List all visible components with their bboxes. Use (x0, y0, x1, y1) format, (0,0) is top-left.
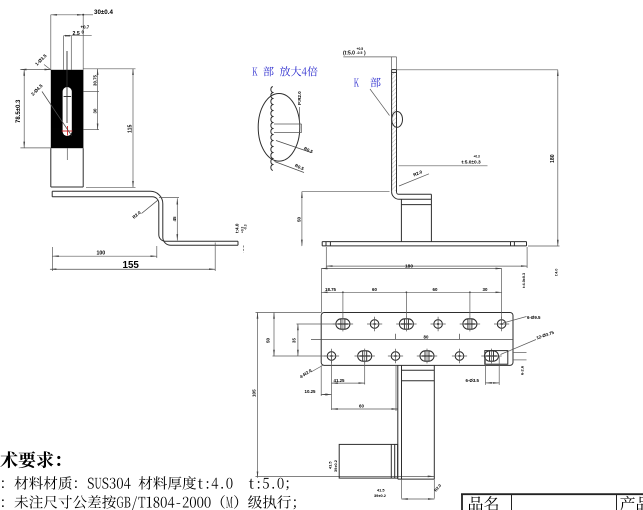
svg-text:41.5: 41.5 (328, 461, 333, 469)
svg-text:80: 80 (424, 335, 429, 340)
svg-text:45: 45 (172, 216, 177, 222)
svg-text:t:4.0: t:4.0 (235, 223, 240, 233)
svg-text:35: 35 (292, 338, 297, 343)
svg-text:10.25: 10.25 (305, 389, 317, 394)
svg-text:41.5: 41.5 (377, 488, 385, 493)
svg-text:2.5: 2.5 (73, 31, 80, 37)
svg-text:2-Ø4.5: 2-Ø4.5 (30, 83, 44, 97)
svg-text:t:5.0±0.3: t:5.0±0.3 (462, 159, 481, 165)
svg-text:6-Ø9.5: 6-Ø9.5 (527, 315, 541, 320)
svg-text:60: 60 (433, 287, 438, 292)
svg-text:(t:5.0: (t:5.0 (343, 51, 355, 57)
svg-text:R2.0: R2.0 (131, 210, 142, 220)
svg-text:): ) (364, 51, 366, 57)
svg-text:t:4.0±0.3: t:4.0±0.3 (522, 273, 526, 288)
svg-text:60: 60 (359, 403, 364, 408)
svg-text:1-Ø3.5: 1-Ø3.5 (34, 53, 48, 67)
svg-text:50: 50 (297, 216, 302, 222)
svg-text:78.5±0.3: 78.5±0.3 (16, 99, 22, 123)
svg-text:t:4.0: t:4.0 (555, 269, 559, 276)
svg-text:6-Ø3.5: 6-Ø3.5 (466, 378, 480, 383)
svg-text:R0.5: R0.5 (303, 146, 314, 155)
svg-text:6-2.6: 6-2.6 (520, 365, 525, 375)
svg-text:P:R2.0: P:R2.0 (297, 91, 302, 105)
svg-text:30.75: 30.75 (92, 74, 97, 86)
svg-text:30±0.4: 30±0.4 (94, 9, 113, 16)
svg-text:105: 105 (251, 389, 256, 397)
svg-text:R2.0: R2.0 (412, 169, 423, 177)
svg-text:18.75: 18.75 (325, 287, 337, 292)
svg-text:100: 100 (97, 251, 106, 257)
svg-text:115: 115 (128, 125, 134, 133)
svg-text:180: 180 (550, 154, 556, 163)
svg-text:39±0.2: 39±0.2 (374, 493, 387, 498)
svg-text:41.25: 41.25 (334, 378, 346, 383)
svg-text:50: 50 (266, 337, 271, 343)
svg-text:60: 60 (372, 287, 377, 292)
svg-text:-0.5: -0.5 (357, 51, 363, 55)
svg-text:180: 180 (405, 263, 413, 269)
svg-text:R0.5: R0.5 (294, 163, 305, 172)
svg-text:39±0.2: 39±0.2 (333, 459, 338, 472)
svg-text:12-Ø3.75: 12-Ø3.75 (536, 330, 555, 341)
svg-text:+0.3: +0.3 (474, 154, 481, 158)
svg-text:0: 0 (82, 30, 85, 35)
svg-text:-0.3: -0.3 (244, 224, 248, 230)
svg-text:4-R2.0: 4-R2.0 (299, 368, 313, 380)
svg-text:30: 30 (92, 108, 97, 113)
svg-text:155: 155 (123, 260, 140, 271)
svg-text:30: 30 (483, 287, 488, 292)
